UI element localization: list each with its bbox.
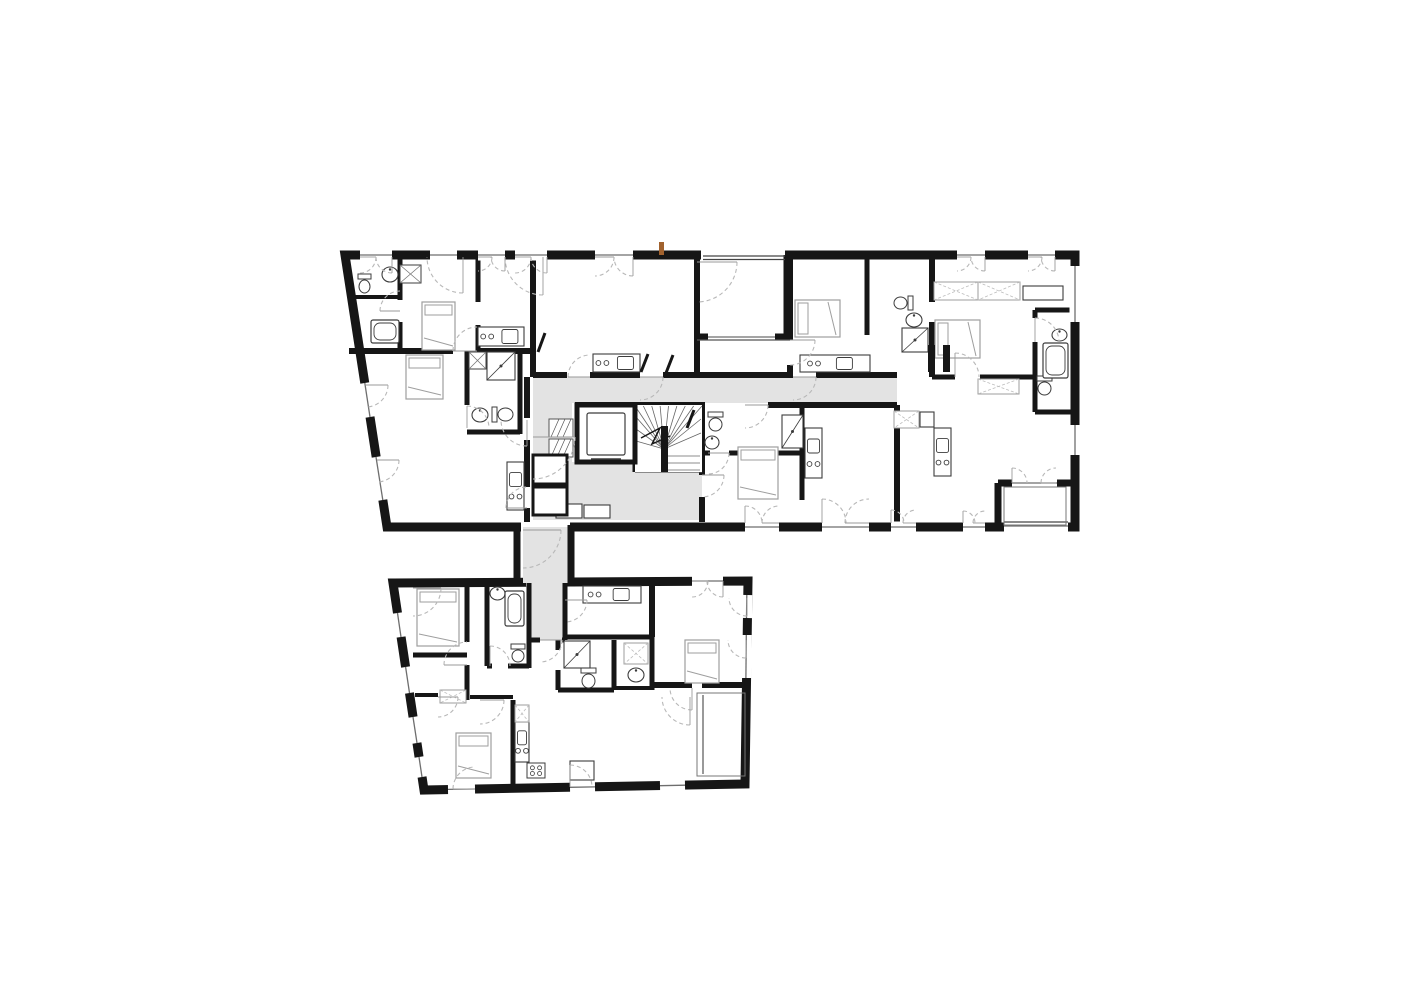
bed — [685, 640, 719, 683]
bed — [456, 733, 491, 778]
shower-drain — [914, 339, 917, 342]
shower-drain — [791, 430, 794, 433]
wardrobe — [440, 690, 466, 703]
tall-unit — [928, 345, 935, 372]
shower-drain — [576, 653, 579, 656]
bed — [417, 589, 459, 646]
bed — [935, 320, 980, 358]
corridor-area — [528, 583, 565, 640]
bed — [795, 300, 840, 337]
kitchen-counter — [583, 586, 641, 603]
sink-faucet — [635, 669, 637, 671]
sink-faucet — [496, 588, 498, 590]
floor-plan-page — [0, 0, 1415, 1000]
elevator-car — [587, 413, 625, 455]
bed — [422, 302, 455, 350]
window-glass — [660, 785, 685, 786]
sink-faucet — [711, 437, 713, 439]
storage-room — [533, 487, 567, 515]
accent-mark — [659, 242, 664, 255]
stove — [527, 763, 545, 778]
stair-center-wall — [661, 426, 668, 472]
sink-faucet — [913, 314, 915, 316]
sink-faucet — [389, 268, 391, 270]
kitchen-counter — [800, 355, 870, 372]
wall-opening-cover — [701, 251, 785, 260]
corridor-area — [533, 377, 897, 403]
sink-faucet — [1058, 330, 1060, 332]
floor-plan-svg — [0, 0, 1415, 1000]
storage-room — [533, 455, 567, 484]
tall-unit — [943, 345, 950, 372]
shower-drain — [500, 365, 503, 368]
corridor-area — [523, 527, 568, 583]
cabinet-box — [1023, 286, 1063, 300]
bed — [406, 355, 443, 399]
cabinet-box — [920, 412, 934, 427]
cabinet-box — [584, 505, 610, 518]
cabinet-box — [570, 761, 594, 780]
